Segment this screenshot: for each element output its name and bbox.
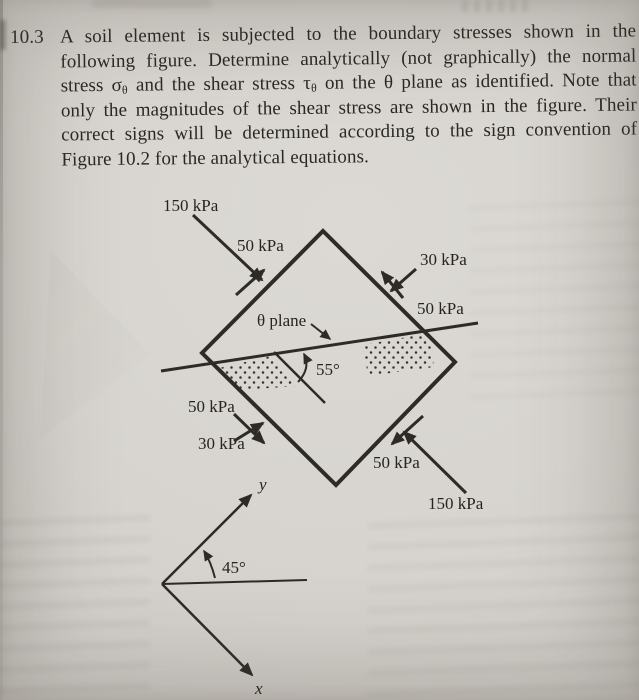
photographed-book-page: 10.3 A soil element is subjected to the … (0, 0, 639, 700)
label-shear-bottom-right: 50 kPa (373, 453, 420, 472)
coordinate-axes (162, 495, 307, 675)
shear-stress-arrow (236, 270, 264, 295)
x-axis-arrow (162, 584, 252, 675)
label-shear-top-right: 50 kPa (417, 299, 464, 318)
label-theta-angle: 55° (316, 360, 340, 379)
theta-plane-pointer-arrow (311, 324, 330, 339)
label-x-axis: x (254, 679, 263, 698)
label-normal-top-right: 30 kPa (420, 250, 467, 269)
horizontal-reference-line (162, 580, 307, 584)
label-y-axis: y (257, 475, 267, 494)
label-normal-bottom-right: 150 kPa (428, 494, 484, 513)
label-theta-plane: θ plane (257, 311, 306, 330)
label-normal-top-left: 150 kPa (163, 196, 219, 215)
label-shear-bottom-left: 50 kPa (188, 397, 235, 416)
angle-45-arc-arrow (204, 551, 215, 578)
label-normal-bottom-left: 30 kPa (198, 434, 245, 453)
top-left-face-stresses (193, 215, 264, 295)
label-axes-angle: 45° (222, 558, 246, 577)
label-shear-top-left: 50 kPa (237, 236, 284, 255)
stress-element-figure: 150 kPa 50 kPa 30 kPa 50 kPa θ plane 55°… (0, 0, 639, 700)
